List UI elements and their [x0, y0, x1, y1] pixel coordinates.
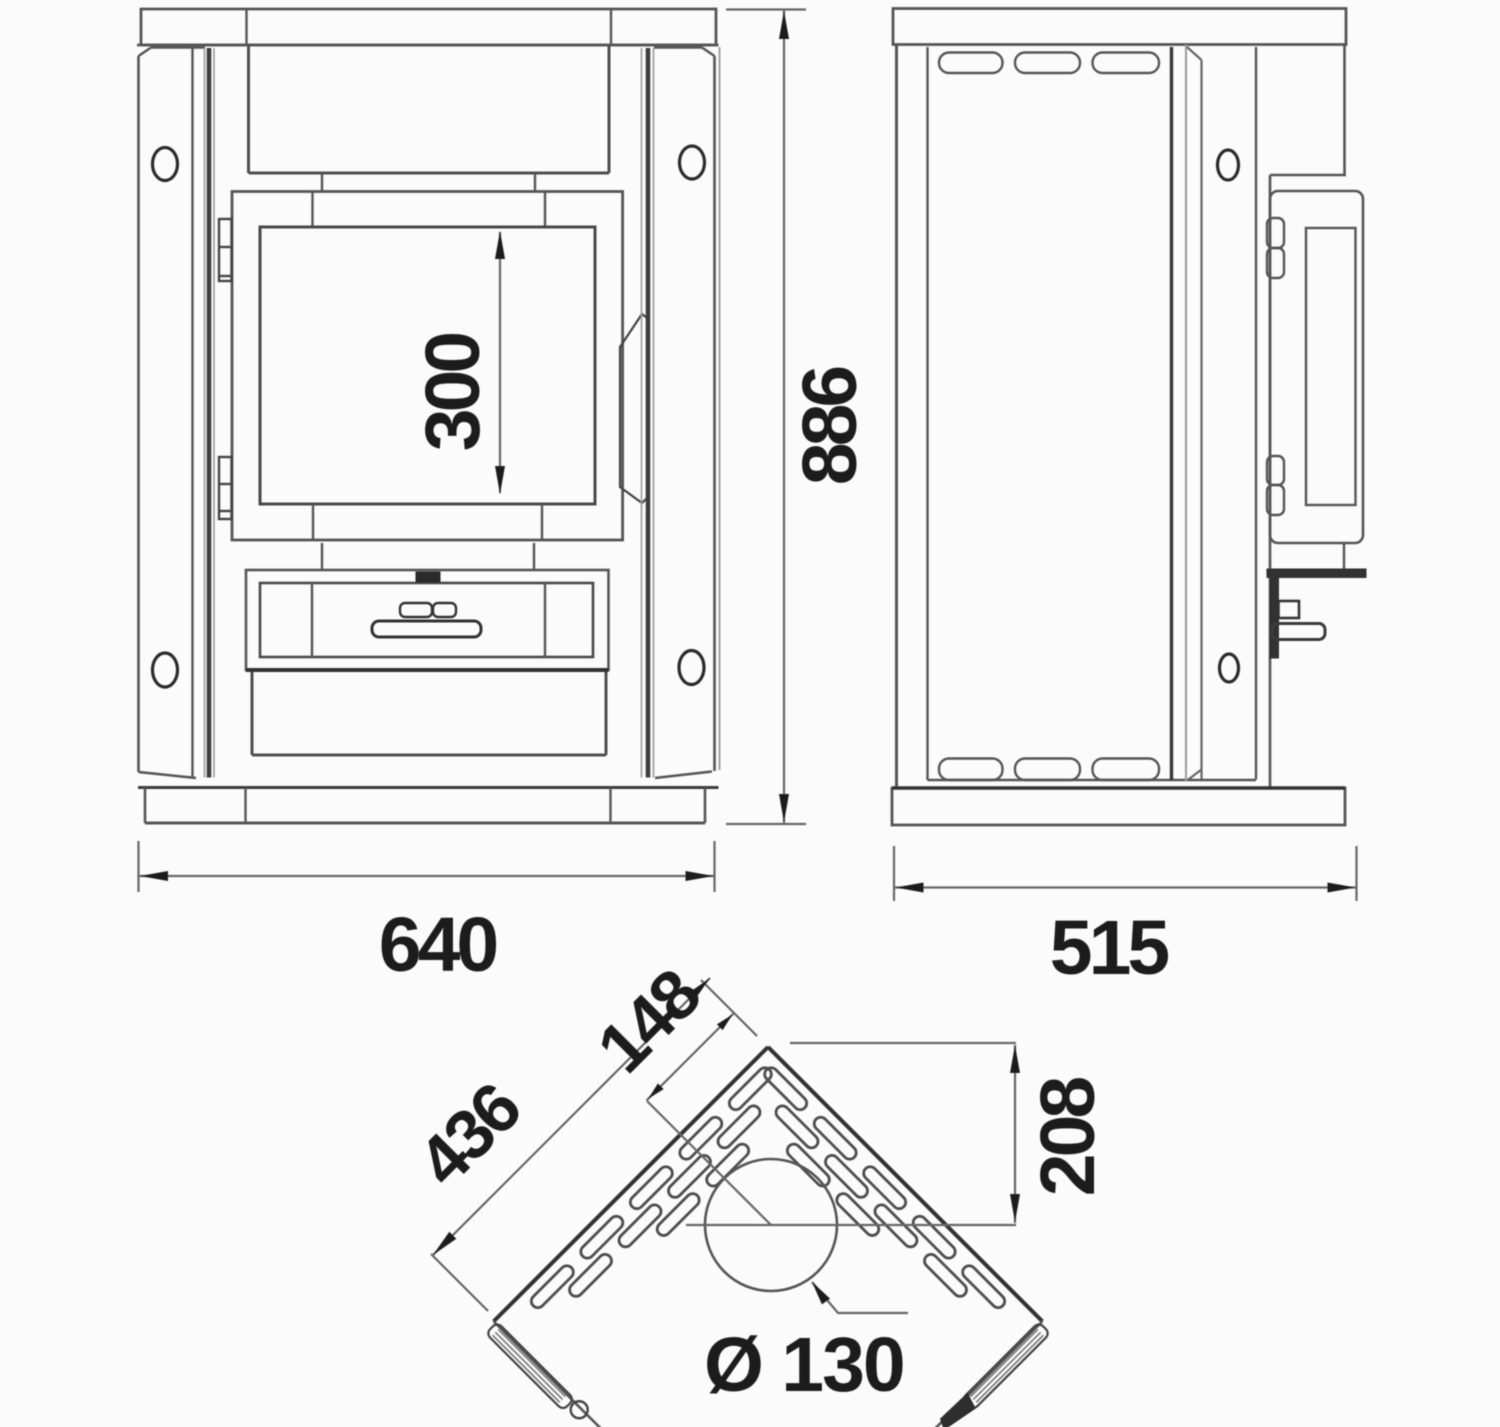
svg-text:208: 208	[1025, 1078, 1111, 1197]
svg-text:640: 640	[379, 902, 497, 988]
svg-text:300: 300	[410, 334, 496, 452]
svg-text:886: 886	[787, 367, 873, 486]
svg-text:Ø 130: Ø 130	[704, 1322, 904, 1408]
svg-text:515: 515	[1050, 905, 1169, 991]
